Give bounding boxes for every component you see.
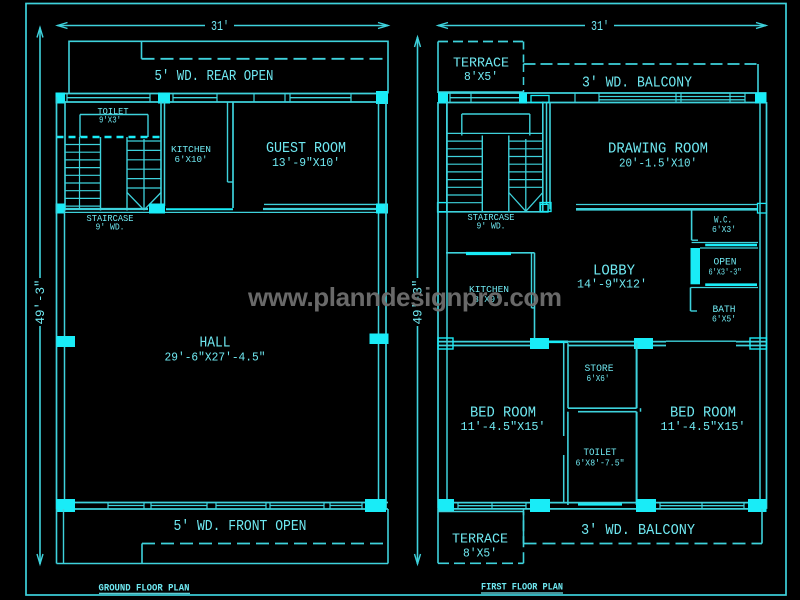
svg-text:29'-6"X27'-4.5": 29'-6"X27'-4.5" <box>165 351 266 365</box>
svg-text:6'X3': 6'X3' <box>712 224 736 235</box>
svg-text:3' WD. BALCONY: 3' WD. BALCONY <box>582 76 692 92</box>
svg-text:DRAWING ROOM: DRAWING ROOM <box>608 141 708 158</box>
svg-text:6'X3'-3": 6'X3'-3" <box>709 268 742 278</box>
svg-text:TOILET: TOILET <box>584 447 617 458</box>
svg-text:6'X5': 6'X5' <box>712 314 736 325</box>
svg-text:6'X6': 6'X6' <box>587 373 610 384</box>
svg-text:HALL: HALL <box>200 335 231 352</box>
svg-text:5' WD. REAR OPEN: 5' WD. REAR OPEN <box>155 69 274 85</box>
svg-text:14'-9"X12': 14'-9"X12' <box>577 278 647 292</box>
svg-text:31': 31' <box>211 20 229 35</box>
svg-text:11'-4.5"X15': 11'-4.5"X15' <box>461 420 546 434</box>
svg-text:FIRST FLOOR PLAN: FIRST FLOOR PLAN <box>481 582 563 594</box>
svg-text:20'-1.5'X10': 20'-1.5'X10' <box>619 157 697 171</box>
svg-text:9' WD.: 9' WD. <box>477 221 506 232</box>
svg-text:3' WD. BALCONY: 3' WD. BALCONY <box>581 523 695 539</box>
svg-text:TERRACE: TERRACE <box>452 532 508 548</box>
svg-text:31': 31' <box>591 20 609 35</box>
svg-text:49'-3": 49'-3" <box>34 280 48 325</box>
svg-text:5' WD. FRONT OPEN: 5' WD. FRONT OPEN <box>174 519 307 535</box>
svg-text:9'X3': 9'X3' <box>99 116 121 126</box>
svg-text:www.planndesignpro.com: www.planndesignpro.com <box>247 282 562 312</box>
svg-text:13'-9"X10': 13'-9"X10' <box>272 156 340 170</box>
svg-text:9' WD.: 9' WD. <box>96 222 125 233</box>
svg-text:6'X8'-7.5": 6'X8'-7.5" <box>576 459 625 469</box>
svg-text:8'X5': 8'X5' <box>463 547 497 561</box>
svg-text:6'X10': 6'X10' <box>175 154 208 165</box>
svg-text:11'-4.5"X15': 11'-4.5"X15' <box>661 420 746 434</box>
svg-text:BED ROOM: BED ROOM <box>670 405 736 422</box>
svg-text:GUEST ROOM: GUEST ROOM <box>266 140 346 157</box>
svg-text:8'X5': 8'X5' <box>464 70 498 84</box>
svg-text:BED ROOM: BED ROOM <box>470 405 536 422</box>
